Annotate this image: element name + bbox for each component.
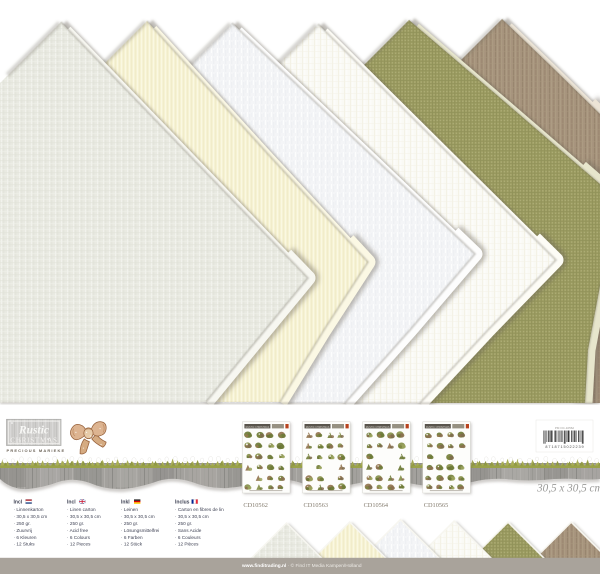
svg-text:· Sans Acide: · Sans Acide [175, 528, 202, 533]
svg-text:· Carton en fibres de lin: · Carton en fibres de lin [175, 507, 224, 512]
svg-text:Incl: Incl [67, 500, 76, 506]
svg-text:CD10564: CD10564 [364, 502, 389, 509]
svg-text:· 250 gr.: · 250 gr. [14, 521, 31, 526]
svg-text:· 6 Farben: · 6 Farben [121, 535, 143, 540]
svg-text:· 250 gr.: · 250 gr. [175, 521, 192, 526]
svg-text:Rustic: Rustic [18, 425, 49, 437]
svg-text:CHRISTMAS: CHRISTMAS [10, 437, 57, 445]
svg-text:CD10562: CD10562 [243, 502, 268, 509]
svg-text:RUSTIC CHRISTMAS: RUSTIC CHRISTMAS [426, 426, 450, 429]
svg-text:· Zuurvrij: · Zuurvrij [14, 528, 33, 533]
svg-text:· Lösungsmittelfrei: · Lösungsmittelfrei [121, 528, 159, 533]
svg-text:· 12 Pièces: · 12 Pièces [175, 542, 199, 547]
svg-text:· 250 gr.: · 250 gr. [121, 521, 138, 526]
svg-text:· 30,5 x 30,5 cm: · 30,5 x 30,5 cm [121, 514, 155, 519]
svg-text:· Leinen: · Leinen [121, 507, 138, 512]
svg-text:· 30,5 x 30,5 cm: · 30,5 x 30,5 cm [14, 514, 48, 519]
svg-text:· 6 Kleuren: · 6 Kleuren [14, 535, 37, 540]
svg-text:30,5 x 30,5 cm: 30,5 x 30,5 cm [536, 483, 600, 495]
svg-text:· Linen carton: · Linen carton [67, 507, 96, 512]
svg-text:· Acid free: · Acid free [67, 528, 88, 533]
svg-text:· 6 Couleurs: · 6 Couleurs [175, 535, 201, 540]
svg-text:www.finditrading.nl · © Find I: www.finditrading.nl · © Find IT Media Ka… [241, 562, 362, 569]
svg-text:PM OC-10562: PM OC-10562 [555, 426, 575, 430]
svg-text:RUSTIC CHRISTMAS: RUSTIC CHRISTMAS [246, 426, 270, 429]
svg-text:· 30,5 x 30,5 cm: · 30,5 x 30,5 cm [67, 514, 101, 519]
svg-text:· 250 gr.: · 250 gr. [67, 521, 84, 526]
svg-text:· Linnenkarton: · Linnenkarton [14, 507, 44, 512]
svg-text:RUSTIC CHRISTMAS: RUSTIC CHRISTMAS [366, 426, 390, 429]
svg-text:· 12 Stuks: · 12 Stuks [14, 542, 36, 547]
svg-text:RUSTIC CHRISTMAS: RUSTIC CHRISTMAS [306, 426, 330, 429]
svg-text:· 12 Pieces: · 12 Pieces [67, 542, 91, 547]
svg-text:· 30,5 x 30,5 cm: · 30,5 x 30,5 cm [175, 514, 209, 519]
svg-text:8718715022239: 8718715022239 [545, 445, 584, 449]
svg-text:CD10565: CD10565 [424, 502, 449, 509]
svg-text:· 6 Colours: · 6 Colours [67, 535, 91, 540]
svg-text:CD10563: CD10563 [304, 502, 329, 509]
svg-text:PRECIOUS MARIEKE: PRECIOUS MARIEKE [7, 448, 66, 453]
svg-text:Inkl: Inkl [121, 500, 130, 506]
svg-text:Incl: Incl [14, 500, 23, 506]
svg-text:· 12 Stück: · 12 Stück [121, 542, 143, 547]
svg-text:Inclus: Inclus [175, 500, 190, 506]
